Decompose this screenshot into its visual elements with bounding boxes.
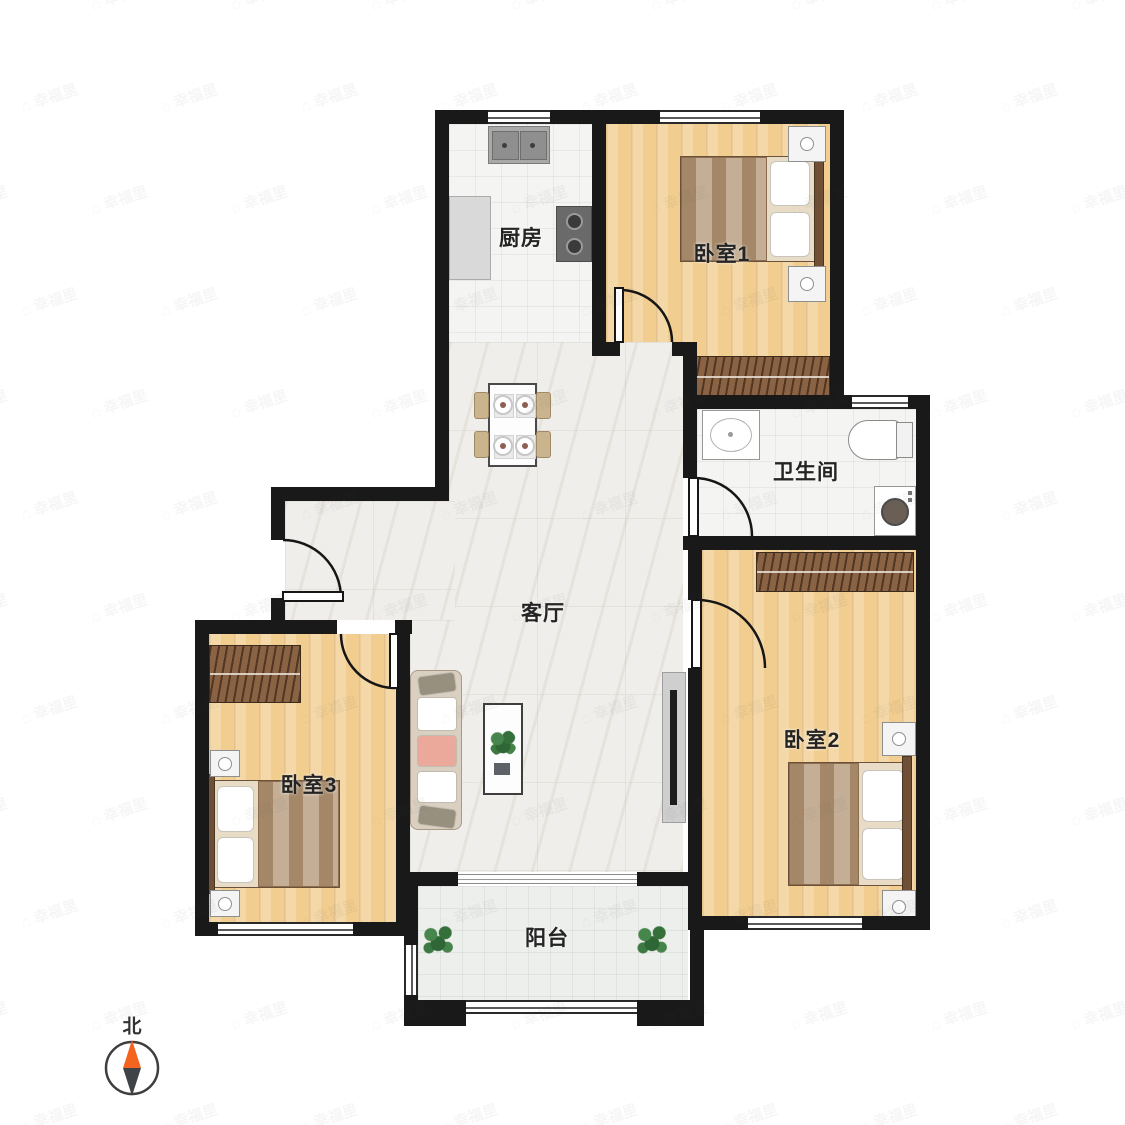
toilet-bowl [848, 420, 900, 460]
watermark-mark: ⌂ 幸福里 [928, 181, 990, 219]
watermark-mark: ⌂ 幸福里 [1068, 181, 1125, 219]
watermark-mark: ⌂ 幸福里 [158, 283, 220, 321]
dinner-plate [493, 395, 513, 415]
bedroom2-headboard [902, 756, 912, 892]
watermark-mark: ⌂ 幸福里 [18, 691, 80, 729]
watermark-mark: ⌂ 幸福里 [928, 997, 990, 1035]
bedroom1-headboard [814, 150, 824, 268]
kitchen-stove [556, 206, 592, 262]
watermark-mark: ⌂ 幸福里 [508, 0, 570, 14]
watermark-mark: ⌂ 幸福里 [158, 79, 220, 117]
tv-screen [670, 690, 677, 805]
compass-needle-south [123, 1068, 141, 1096]
floor-plan-page: { "page": {"type": "apartment-floor-plan… [0, 0, 1125, 1125]
bedroom2-label: 卧室2 [784, 724, 841, 754]
watermark-mark: ⌂ 幸福里 [18, 895, 80, 933]
watermark-mark: ⌂ 幸福里 [998, 691, 1060, 729]
bathroom-label: 卫生间 [773, 456, 839, 486]
coffee-table [483, 703, 523, 795]
table-plant [489, 729, 517, 757]
bedroom3-pillow-1 [217, 786, 254, 832]
balcony-label: 阳台 [525, 922, 569, 952]
watermark-mark: ⌂ 幸福里 [18, 283, 80, 321]
kitchen-window [488, 110, 550, 124]
wall-kitchen-left [435, 110, 449, 501]
dining-table [488, 383, 537, 467]
watermark-mark: ⌂ 幸福里 [228, 181, 290, 219]
north-label: 北 [122, 1012, 141, 1039]
wall-entry-left-upper [271, 487, 285, 540]
bathroom-window [852, 395, 908, 409]
toilet [848, 420, 914, 460]
watermark-mark: ⌂ 幸福里 [928, 385, 990, 423]
table-book [494, 763, 510, 775]
bedroom1-nightstand-top [788, 126, 826, 162]
watermark-mark: ⌂ 幸福里 [368, 0, 430, 14]
balcony-pier-left [404, 1000, 466, 1026]
tv-stand [662, 672, 686, 823]
bathroom-sink [702, 410, 760, 460]
watermark-mark: ⌂ 幸福里 [368, 181, 430, 219]
compass-needle-north [123, 1040, 141, 1068]
bedroom3-pillow-2 [217, 837, 254, 883]
balcony-plant-left [420, 922, 456, 958]
watermark-mark: ⌂ 幸福里 [228, 997, 290, 1035]
watermark-mark: ⌂ 幸福里 [88, 181, 150, 219]
watermark-mark: ⌂ 幸福里 [18, 79, 80, 117]
watermark-mark: ⌂ 幸福里 [1068, 0, 1125, 14]
wall-living-right [683, 342, 697, 478]
watermark-mark: ⌂ 幸福里 [928, 0, 990, 14]
watermark-mark: ⌂ 幸福里 [18, 487, 80, 525]
watermark-mark: ⌂ 幸福里 [0, 181, 10, 219]
watermark-mark: ⌂ 幸福里 [158, 487, 220, 525]
watermark-mark: ⌂ 幸福里 [648, 0, 710, 14]
wall-living-balcony-left [410, 872, 458, 886]
watermark-mark: ⌂ 幸福里 [88, 793, 150, 831]
watermark-mark: ⌂ 幸福里 [578, 1099, 640, 1125]
living-room-label: 客厅 [521, 597, 565, 627]
washer-drum [881, 498, 909, 526]
watermark-mark: ⌂ 幸福里 [1068, 589, 1125, 627]
bedroom1-pillow-2 [770, 212, 810, 257]
watermark-mark: ⌂ 幸福里 [0, 589, 10, 627]
watermark-mark: ⌂ 幸福里 [88, 385, 150, 423]
bedroom1-label: 卧室1 [694, 238, 751, 268]
bedroom2-wardrobe [756, 552, 914, 592]
balcony-plant-right [634, 922, 670, 958]
watermark-mark: ⌂ 幸福里 [298, 283, 360, 321]
watermark-mark: ⌂ 幸福里 [88, 0, 150, 14]
kitchen-label: 厨房 [499, 222, 543, 252]
bedroom1-pillow-1 [770, 161, 810, 206]
watermark-mark: ⌂ 幸福里 [18, 1099, 80, 1125]
toilet-tank [896, 422, 913, 458]
stove-burner-bottom [566, 238, 583, 255]
wall-bedroom2-left-upper [688, 536, 702, 600]
balcony-window-left [404, 945, 418, 995]
bedroom2-blanket [789, 763, 859, 885]
wall-balcony-right [690, 920, 704, 1014]
watermark-mark: ⌂ 幸福里 [718, 1099, 780, 1125]
bedroom3-label: 卧室3 [281, 769, 338, 799]
watermark-mark: ⌂ 幸福里 [0, 997, 10, 1035]
wall-bathroom-bottom [683, 536, 930, 550]
bedroom1-nightstand-bottom [788, 266, 826, 302]
washer-knob-2 [908, 498, 912, 502]
bedroom3-nightstand-bottom [210, 890, 240, 917]
watermark-mark: ⌂ 幸福里 [0, 793, 10, 831]
watermark-mark: ⌂ 幸福里 [228, 0, 290, 14]
wall-bedroom3-left [195, 620, 209, 936]
balcony-window-bottom [466, 1000, 637, 1014]
watermark-mark: ⌂ 幸福里 [368, 385, 430, 423]
sofa-cushion [417, 771, 457, 803]
wall-bedroom1-bottom-left [592, 342, 620, 356]
watermark-mark: ⌂ 幸福里 [858, 283, 920, 321]
wall-bedroom3-top-left [195, 620, 337, 634]
watermark-mark: ⌂ 幸福里 [998, 487, 1060, 525]
watermark-mark: ⌂ 幸福里 [858, 1099, 920, 1125]
watermark-mark: ⌂ 幸福里 [788, 0, 850, 14]
watermark-mark: ⌂ 幸福里 [928, 793, 990, 831]
watermark-mark: ⌂ 幸福里 [928, 589, 990, 627]
washing-machine [874, 486, 916, 536]
sofa-pillow [417, 804, 457, 829]
bedroom2-door-leaf [692, 600, 701, 668]
watermark-mark: ⌂ 幸福里 [298, 79, 360, 117]
compass-circle [106, 1042, 158, 1094]
sofa-cushion [417, 697, 457, 731]
dining-chair [536, 431, 551, 458]
bedroom2-pillow-2 [862, 828, 904, 880]
dinner-plate [493, 436, 513, 456]
dining-chair [474, 431, 489, 458]
balcony-threshold [458, 874, 637, 884]
wall-bedroom1-divider [592, 110, 606, 356]
bathroom-sink-drain [728, 432, 733, 437]
watermark-mark: ⌂ 幸福里 [438, 1099, 500, 1125]
bedroom3-wardrobe [209, 645, 301, 703]
watermark-mark: ⌂ 幸福里 [1068, 385, 1125, 423]
watermark-mark: ⌂ 幸福里 [1068, 997, 1125, 1035]
watermark-mark: ⌂ 幸福里 [788, 997, 850, 1035]
dining-chair [536, 392, 551, 419]
washer-knob-1 [908, 491, 912, 495]
bedroom2-window [748, 916, 862, 930]
sofa-pillow [417, 671, 457, 696]
dinner-plate [515, 436, 535, 456]
sofa [410, 670, 462, 830]
stove-burner-top [566, 213, 583, 230]
watermark-mark: ⌂ 幸福里 [998, 1099, 1060, 1125]
watermark-mark: ⌂ 幸福里 [158, 1099, 220, 1125]
watermark-mark: ⌂ 幸福里 [228, 385, 290, 423]
wall-bedroom1-right [830, 110, 844, 409]
watermark-mark: ⌂ 幸福里 [1068, 793, 1125, 831]
sink-drain-left [502, 143, 507, 148]
entry-hall-floor [285, 501, 455, 620]
wall-entry-top [271, 487, 449, 501]
sofa-cushion-pink [417, 735, 457, 767]
wall-right-outer [916, 395, 930, 930]
watermark-mark: ⌂ 幸福里 [998, 283, 1060, 321]
kitchen-counter [449, 196, 491, 280]
kitchen-sink [488, 126, 550, 164]
bedroom1-wardrobe [690, 356, 830, 398]
dinner-plate [515, 395, 535, 415]
bedroom3-window [218, 922, 353, 936]
dining-chair [474, 392, 489, 419]
bedroom3-nightstand-top [210, 750, 240, 777]
watermark-mark: ⌂ 幸福里 [88, 589, 150, 627]
watermark-mark: ⌂ 幸福里 [858, 79, 920, 117]
watermark-mark: ⌂ 幸福里 [0, 385, 10, 423]
watermark-mark: ⌂ 幸福里 [0, 0, 10, 14]
sink-drain-right [530, 143, 535, 148]
watermark-mark: ⌂ 幸福里 [998, 79, 1060, 117]
bedroom2-pillow-1 [862, 770, 904, 822]
bedroom2-nightstand-top [882, 722, 916, 756]
wall-bedroom2-left-lower [688, 668, 702, 920]
watermark-mark: ⌂ 幸福里 [298, 1099, 360, 1125]
watermark-mark: ⌂ 幸福里 [998, 895, 1060, 933]
bedroom1-window [660, 110, 760, 124]
